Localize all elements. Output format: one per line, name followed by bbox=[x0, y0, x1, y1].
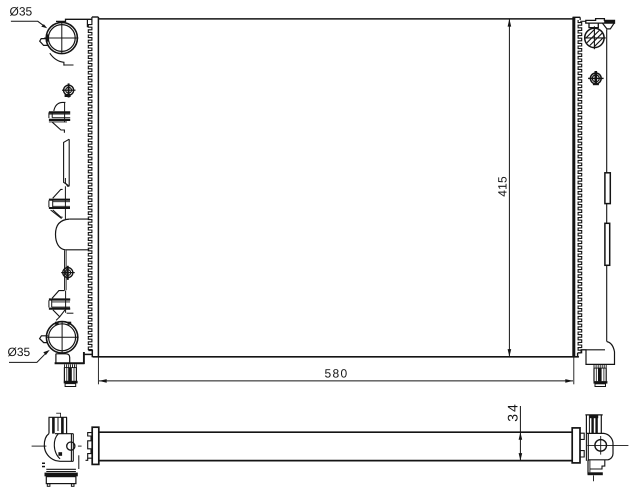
svg-text:580: 580 bbox=[325, 367, 349, 381]
svg-text:415: 415 bbox=[496, 176, 510, 197]
svg-text:34: 34 bbox=[505, 402, 521, 422]
svg-text:Ø35: Ø35 bbox=[8, 345, 31, 359]
svg-text:Ø35: Ø35 bbox=[10, 5, 33, 19]
